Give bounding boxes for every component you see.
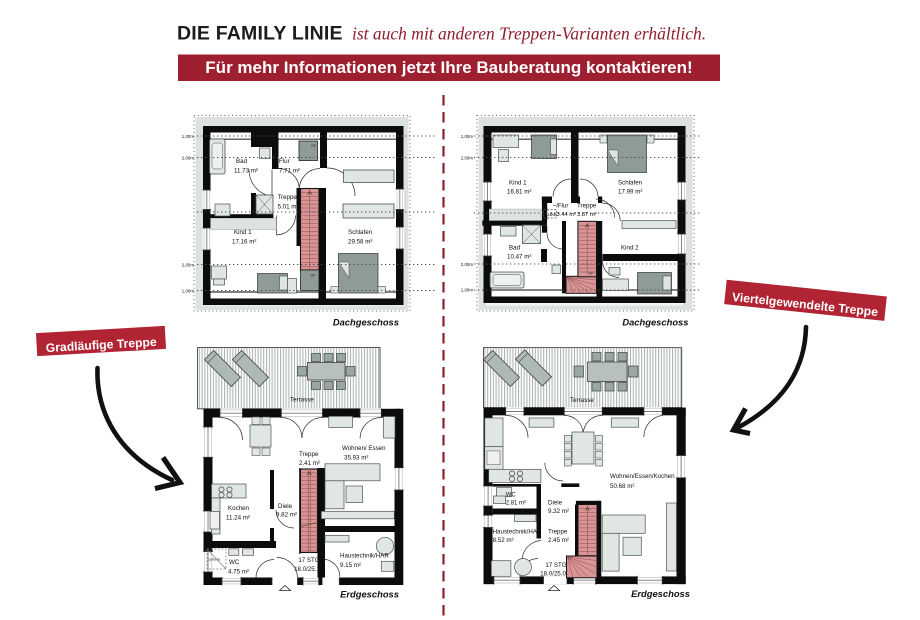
svg-text:1,00m: 1,00m xyxy=(182,134,195,139)
svg-text:Dachgeschoss: Dachgeschoss xyxy=(333,317,399,328)
svg-text:11.73 m²: 11.73 m² xyxy=(234,168,258,175)
svg-text:7.71 m²: 7.71 m² xyxy=(279,168,300,175)
svg-text:Bad: Bad xyxy=(236,158,248,165)
svg-text:Kind 1: Kind 1 xyxy=(234,229,252,236)
svg-text:2,00m: 2,00m xyxy=(461,262,474,267)
svg-text:OF: OF xyxy=(311,274,317,278)
svg-text:9.82 m²: 9.82 m² xyxy=(276,512,297,519)
svg-text:Diele: Diele xyxy=(548,500,563,507)
svg-text:11.24 m²: 11.24 m² xyxy=(226,515,250,522)
svg-text:2,00m: 2,00m xyxy=(461,156,474,161)
svg-text:OF: OF xyxy=(311,144,317,148)
svg-text:2,00m: 2,00m xyxy=(182,156,195,161)
svg-text:WC: WC xyxy=(506,493,517,499)
svg-text:Flur: Flur xyxy=(279,158,290,165)
svg-text:2.81 m²: 2.81 m² xyxy=(506,501,526,507)
svg-text:Kind 1: Kind 1 xyxy=(509,180,527,187)
svg-text:9.15 m²: 9.15 m² xyxy=(340,562,361,569)
svg-text:Haustechnik/HAR: Haustechnik/HAR xyxy=(340,553,389,560)
svg-text:Treppe: Treppe xyxy=(278,194,298,201)
svg-text:10.47 m²: 10.47 m² xyxy=(507,254,531,261)
svg-text:17.16 m²: 17.16 m² xyxy=(232,239,256,246)
svg-text:2,00m: 2,00m xyxy=(182,263,195,268)
svg-text:17.99 m²: 17.99 m² xyxy=(618,189,642,196)
svg-text:Wohnen/Essen/Kochen: Wohnen/Essen/Kochen xyxy=(610,473,675,480)
svg-text:Treppe: Treppe xyxy=(577,203,597,210)
svg-text:9.32 m²: 9.32 m² xyxy=(548,508,569,515)
svg-text:Terrasse: Terrasse xyxy=(290,397,314,404)
svg-text:Schlafen: Schlafen xyxy=(348,229,373,236)
svg-text:17 STG: 17 STG xyxy=(545,562,567,569)
svg-text:Kochen: Kochen xyxy=(228,505,250,512)
svg-text:WC: WC xyxy=(229,559,240,566)
svg-text:5.01 m²: 5.01 m² xyxy=(278,204,299,211)
svg-text:optional: optional xyxy=(208,558,220,562)
svg-text:Treppe: Treppe xyxy=(299,451,319,458)
svg-text:OF: OF xyxy=(589,272,595,276)
svg-text:Erdgeschoss: Erdgeschoss xyxy=(631,588,690,599)
svg-text:Für mehr Informationen jetzt I: Für mehr Informationen jetzt Ihre Bauber… xyxy=(205,58,692,77)
svg-text:8.52 m²: 8.52 m² xyxy=(493,537,514,544)
svg-text:Erdgeschoss: Erdgeschoss xyxy=(340,589,399,600)
svg-text:Treppe: Treppe xyxy=(548,529,568,536)
svg-text:3.87 m²: 3.87 m² xyxy=(577,212,597,218)
svg-text:Dachgeschoss: Dachgeschoss xyxy=(622,317,688,328)
svg-text:DIE FAMILY LINIE: DIE FAMILY LINIE xyxy=(177,23,343,45)
svg-text:Kind 2: Kind 2 xyxy=(621,245,639,252)
svg-text:1,00m: 1,00m xyxy=(182,289,195,294)
svg-text:Wohnen/ Essen: Wohnen/ Essen xyxy=(342,445,386,452)
svg-text:Luke: Luke xyxy=(545,212,556,218)
svg-text:Diele: Diele xyxy=(278,503,293,510)
svg-text:50.68 m²: 50.68 m² xyxy=(610,483,634,490)
svg-text:ist auch mit anderen Treppen-V: ist auch mit anderen Treppen-Varianten e… xyxy=(352,24,706,44)
svg-text:Bad: Bad xyxy=(509,245,521,252)
svg-text:17 STG: 17 STG xyxy=(298,557,320,564)
svg-text:16.81 m²: 16.81 m² xyxy=(507,189,531,196)
svg-text:18.0/25.1: 18.0/25.1 xyxy=(294,566,320,573)
svg-text:Haustechnik/HAR: Haustechnik/HAR xyxy=(493,529,542,536)
svg-text:‒/Flur: ‒/Flur xyxy=(553,204,568,210)
svg-text:35.93 m²: 35.93 m² xyxy=(344,455,368,462)
svg-text:2.45 m²: 2.45 m² xyxy=(548,537,569,544)
svg-text:16.43 m²: 16.43 m² xyxy=(619,254,643,261)
svg-text:Terrasse: Terrasse xyxy=(570,397,594,404)
svg-text:18.0/25.0: 18.0/25.0 xyxy=(540,571,566,578)
svg-text:1,00m: 1,00m xyxy=(461,134,474,139)
svg-text:3.44 m²: 3.44 m² xyxy=(557,212,577,218)
svg-text:1,00m: 1,00m xyxy=(461,288,474,293)
svg-text:2.41 m²: 2.41 m² xyxy=(299,460,320,467)
svg-text:Schlafen: Schlafen xyxy=(618,180,643,187)
svg-text:4.75 m²: 4.75 m² xyxy=(228,569,249,576)
svg-text:29.58 m²: 29.58 m² xyxy=(348,239,372,246)
